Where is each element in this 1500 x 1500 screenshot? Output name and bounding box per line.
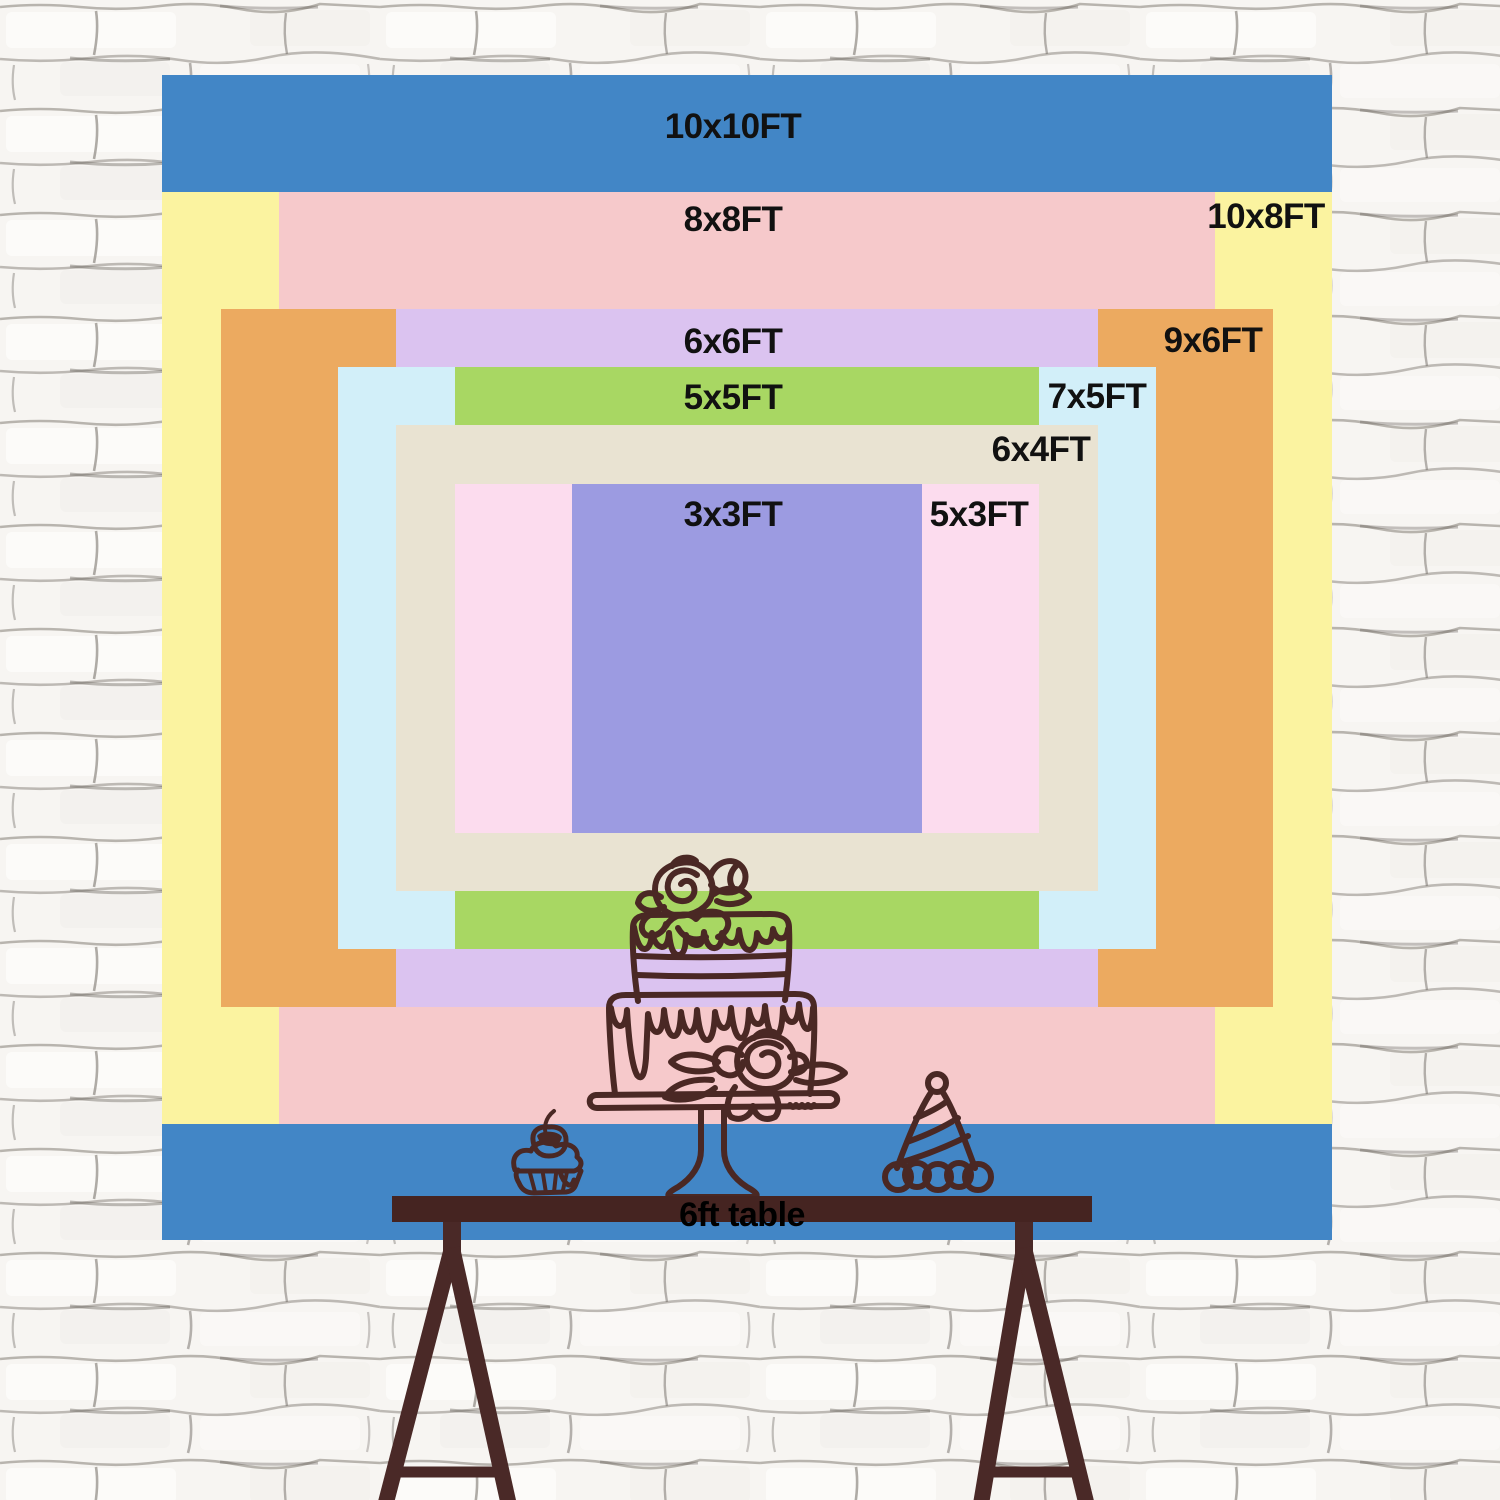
size-label-5x3ft: 5x3FT bbox=[919, 495, 1039, 535]
size-label-8x8ft: 8x8FT bbox=[265, 200, 1201, 240]
table-top-bar: 6ft table bbox=[392, 1196, 1092, 1222]
size-label-7x5ft: 7x5FT bbox=[1037, 377, 1157, 417]
table-size-label: 6ft table bbox=[392, 1196, 1092, 1235]
backdrop-layer-3x3ft bbox=[572, 484, 922, 833]
size-label-10x8ft: 10x8FT bbox=[1196, 197, 1336, 237]
backdrop-size-chart-image: 10x10FT 10x8FT 8x8FT 9x6FT 6x6FT 7x5FT 5… bbox=[0, 0, 1500, 1500]
size-label-3x3ft: 3x3FT bbox=[558, 495, 908, 535]
size-label-9x6ft: 9x6FT bbox=[1148, 321, 1278, 361]
size-label-6x4ft: 6x4FT bbox=[981, 430, 1101, 470]
size-label-6x6ft: 6x6FT bbox=[382, 322, 1084, 362]
size-label-10x10ft: 10x10FT bbox=[148, 107, 1318, 147]
size-label-5x5ft: 5x5FT bbox=[441, 378, 1025, 418]
